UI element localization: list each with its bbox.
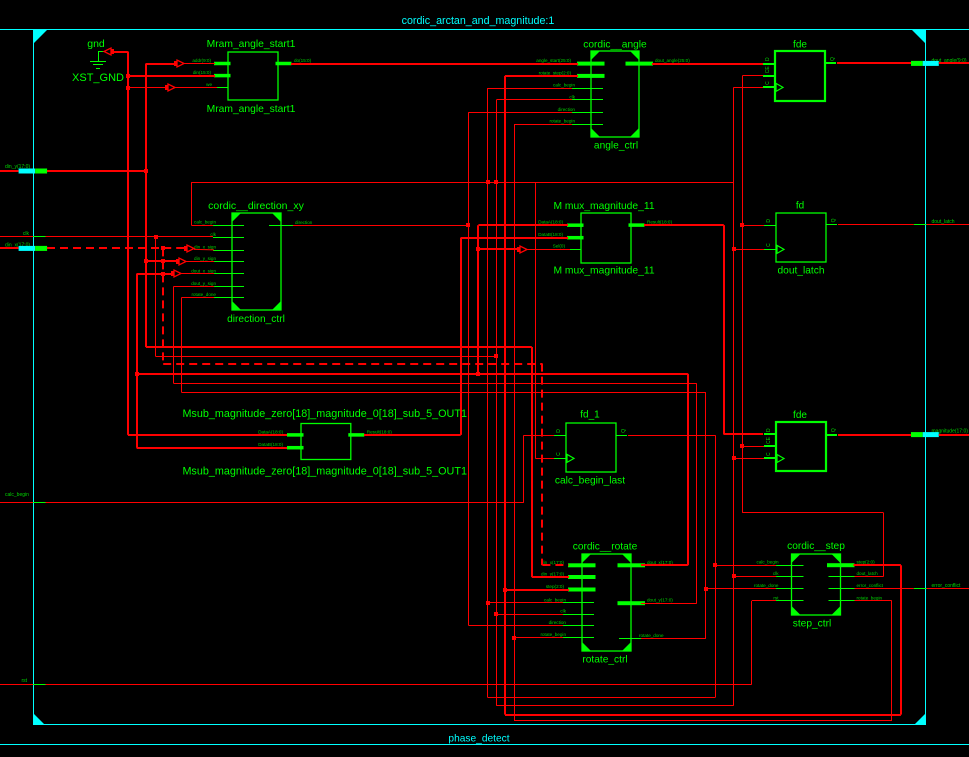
svg-text:calc_begin: calc_begin bbox=[757, 560, 779, 565]
svg-text:gnd: gnd bbox=[87, 38, 105, 50]
svg-text:we: we bbox=[206, 82, 212, 87]
svg-text:XST_GND: XST_GND bbox=[72, 72, 124, 84]
svg-text:Q: Q bbox=[831, 428, 837, 432]
svg-text:rotate_begin: rotate_begin bbox=[549, 119, 575, 124]
svg-text:do(15:0): do(15:0) bbox=[294, 58, 312, 63]
svg-text:D: D bbox=[766, 219, 772, 223]
svg-text:Result(18:0): Result(18:0) bbox=[647, 220, 672, 225]
svg-text:cordic__step: cordic__step bbox=[787, 541, 845, 552]
svg-text:fd_1: fd_1 bbox=[580, 410, 600, 421]
svg-text:cordic__angle: cordic__angle bbox=[583, 40, 647, 51]
svg-text:DataA(18:0): DataA(18:0) bbox=[258, 429, 283, 434]
svg-text:direction: direction bbox=[295, 220, 313, 225]
svg-text:direction: direction bbox=[549, 620, 567, 625]
svg-text:calc_begin_last: calc_begin_last bbox=[555, 476, 625, 487]
svg-text:step_ctrl: step_ctrl bbox=[793, 619, 832, 630]
svg-text:CE: CE bbox=[765, 66, 771, 74]
svg-text:DataB(18:0): DataB(18:0) bbox=[258, 442, 283, 447]
svg-text:C: C bbox=[766, 243, 772, 247]
svg-text:angle_ctrl: angle_ctrl bbox=[594, 141, 638, 152]
svg-text:DataB(18:0): DataB(18:0) bbox=[538, 232, 563, 237]
svg-text:phase_detect: phase_detect bbox=[448, 734, 509, 745]
svg-text:dout_y(17:0): dout_y(17:0) bbox=[647, 598, 673, 603]
svg-text:clk: clk bbox=[569, 94, 575, 99]
svg-text:M mux_magnitude_11: M mux_magnitude_11 bbox=[553, 201, 654, 212]
svg-text:rst: rst bbox=[21, 678, 27, 684]
svg-text:din_y(17:0): din_y(17:0) bbox=[541, 572, 564, 577]
svg-text:cordic_arctan_and_magnitude:1: cordic_arctan_and_magnitude:1 bbox=[402, 15, 555, 27]
svg-text:calc_begin: calc_begin bbox=[5, 492, 29, 498]
svg-text:calc_begin: calc_begin bbox=[553, 83, 575, 88]
svg-text:D: D bbox=[556, 429, 562, 433]
svg-text:direction_ctrl: direction_ctrl bbox=[227, 314, 285, 325]
svg-text:din_x_sign: din_x_sign bbox=[194, 245, 216, 250]
svg-text:Msub_magnitude_zero[18]_magnit: Msub_magnitude_zero[18]_magnitude_0[18]_… bbox=[182, 466, 467, 478]
svg-text:angle_start(25:0): angle_start(25:0) bbox=[536, 58, 571, 63]
svg-text:Q: Q bbox=[621, 429, 627, 433]
svg-text:dout_x_sign: dout_x_sign bbox=[191, 268, 216, 273]
svg-text:fd: fd bbox=[796, 201, 804, 212]
svg-text:step(2:0): step(2:0) bbox=[546, 584, 565, 589]
svg-text:rst: rst bbox=[773, 595, 779, 600]
svg-text:rotate_step(2:0): rotate_step(2:0) bbox=[539, 70, 572, 75]
svg-text:dout_angle(25:0): dout_angle(25:0) bbox=[655, 58, 690, 63]
svg-text:rotate_ctrl: rotate_ctrl bbox=[582, 655, 627, 666]
svg-text:din(15:0): din(15:0) bbox=[193, 70, 212, 75]
svg-text:Q: Q bbox=[830, 57, 836, 61]
svg-text:rotate_done: rotate_done bbox=[754, 583, 779, 588]
svg-text:dout_latch: dout_latch bbox=[777, 266, 824, 277]
svg-text:calc_begin: calc_begin bbox=[194, 220, 216, 225]
svg-text:din_y_sign: din_y_sign bbox=[194, 256, 216, 261]
svg-text:C: C bbox=[765, 81, 771, 85]
svg-text:cordic__direction_xy: cordic__direction_xy bbox=[208, 200, 304, 212]
svg-text:rotate_begin: rotate_begin bbox=[540, 632, 566, 637]
svg-text:C: C bbox=[766, 452, 772, 456]
svg-text:clk: clk bbox=[560, 609, 566, 614]
svg-text:Q: Q bbox=[831, 218, 837, 222]
svg-text:Mram_angle_start1: Mram_angle_start1 bbox=[207, 39, 296, 50]
svg-text:fde: fde bbox=[793, 40, 807, 51]
svg-text:dout_latch: dout_latch bbox=[857, 571, 879, 576]
svg-text:DataA(18:0): DataA(18:0) bbox=[538, 220, 563, 225]
svg-text:clk: clk bbox=[773, 571, 779, 576]
svg-text:D: D bbox=[766, 428, 772, 432]
svg-text:rotate_done: rotate_done bbox=[191, 292, 216, 297]
svg-text:direction: direction bbox=[558, 107, 576, 112]
svg-text:M mux_magnitude_11: M mux_magnitude_11 bbox=[553, 266, 654, 277]
svg-text:rotate_done: rotate_done bbox=[639, 633, 664, 638]
svg-text:Msub_magnitude_zero[18]_magnit: Msub_magnitude_zero[18]_magnitude_0[18]_… bbox=[182, 408, 467, 420]
svg-text:CE: CE bbox=[766, 436, 772, 444]
svg-text:fde: fde bbox=[793, 410, 807, 421]
svg-text:rotate_begin: rotate_begin bbox=[857, 595, 883, 600]
svg-text:addr(9:0): addr(9:0) bbox=[192, 58, 211, 63]
svg-text:cordic__rotate: cordic__rotate bbox=[573, 542, 638, 553]
svg-text:step(2:0): step(2:0) bbox=[857, 560, 876, 565]
svg-text:Result(18:0): Result(18:0) bbox=[367, 429, 392, 434]
svg-text:dout_y_sign: dout_y_sign bbox=[191, 281, 216, 286]
svg-text:D: D bbox=[765, 57, 771, 61]
svg-text:error_conflict: error_conflict bbox=[857, 583, 884, 588]
svg-text:Mram_angle_start1: Mram_angle_start1 bbox=[207, 104, 296, 115]
svg-text:Sel(0): Sel(0) bbox=[553, 244, 566, 249]
svg-text:calc_begin: calc_begin bbox=[544, 597, 566, 602]
svg-text:C: C bbox=[556, 452, 562, 456]
